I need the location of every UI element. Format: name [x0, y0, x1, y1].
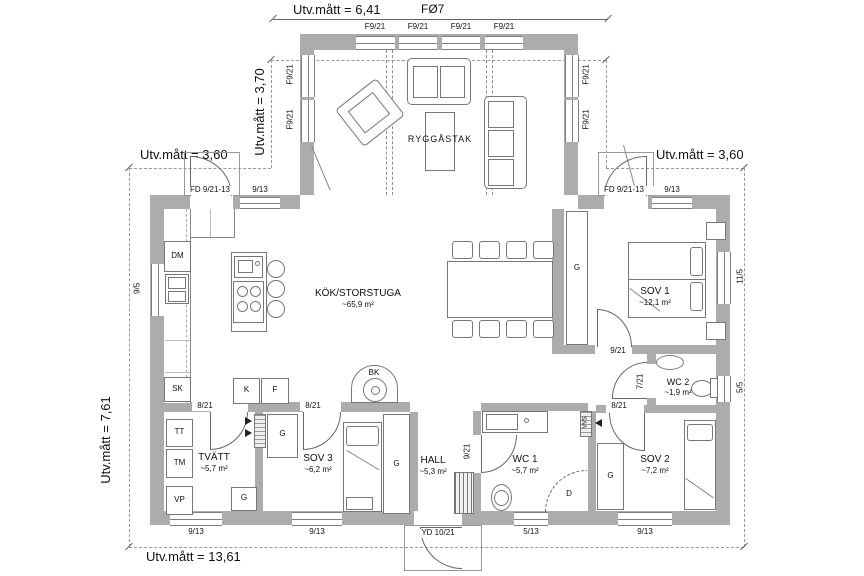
window-913	[292, 512, 342, 526]
door-arc	[303, 412, 341, 450]
room-area-sov2: ~7,2 m²	[620, 467, 690, 476]
window-513	[514, 512, 548, 526]
dining-chair	[506, 241, 527, 259]
wall-top	[300, 34, 578, 50]
window-label-f921: F9/21	[484, 23, 524, 32]
door-opening-fd	[604, 195, 648, 209]
bar-stool	[267, 260, 285, 278]
dining-chair	[533, 320, 554, 338]
dim-top-section: Utv.mått = 3,70	[253, 52, 269, 172]
door-label-921: 9/21	[605, 347, 631, 356]
window-label-913: 9/13	[297, 528, 337, 537]
sofa-cushion	[488, 101, 514, 128]
bar-stool	[267, 300, 285, 318]
dim-top: Utv.mått = 6,41	[293, 3, 381, 17]
toilet-seat	[494, 490, 509, 506]
wall-main-right	[716, 195, 730, 525]
toilet-tank	[710, 378, 718, 398]
dimension-line-top	[273, 19, 608, 20]
window-f921	[565, 100, 579, 142]
window-f921	[301, 100, 315, 142]
diagonal-mark	[311, 146, 331, 191]
dining-chair	[479, 241, 500, 259]
dim-side: Utv.mått = 7,61	[99, 380, 115, 500]
vanity-sink	[486, 414, 518, 430]
flue-inner	[371, 386, 380, 395]
window-label-55: 5/5	[737, 367, 746, 407]
door-label-921: 9/21	[464, 431, 473, 471]
window-label-913: 9/13	[652, 186, 692, 195]
window-label-95: 9/5	[134, 268, 143, 308]
pillow	[690, 282, 703, 311]
door-label-721: 7/21	[637, 361, 646, 401]
heat-pump-label: VP	[166, 496, 193, 505]
dim-roof-window: FØ7	[421, 3, 444, 16]
window-913	[652, 197, 692, 209]
dining-table	[447, 261, 553, 318]
floor-plan: Utv.mått = 6,41 FØ7 Utv.mått = 3,70 Utv.…	[0, 0, 864, 576]
window-label-115: 11/5	[737, 256, 746, 296]
dresser	[346, 497, 373, 510]
cabinet-label-sk: SK	[164, 385, 191, 394]
wall-wc1-top	[481, 403, 588, 411]
fireplace-label: BK	[362, 369, 386, 378]
counter-divider	[165, 340, 190, 341]
nightstand	[706, 322, 726, 340]
window-label-f921: F9/21	[441, 23, 481, 32]
window-55	[717, 376, 731, 402]
radiator	[454, 472, 474, 514]
burner	[237, 301, 248, 312]
window-label-913: 9/13	[176, 528, 216, 537]
window-115	[717, 252, 731, 304]
wall-sov2-top	[596, 405, 606, 413]
door-label-fd: FD 9/21-13	[186, 186, 234, 195]
room-label-hall: HALL	[408, 455, 458, 466]
burner	[237, 286, 248, 297]
counter-divider	[165, 372, 190, 373]
door-arc	[210, 412, 248, 450]
counter-overhang	[186, 209, 187, 403]
burner	[250, 286, 261, 297]
pillow	[346, 426, 379, 446]
room-label-tvatt: TVÄTT	[184, 452, 244, 463]
wash-basin	[656, 355, 684, 370]
wall-sov1-bottom	[552, 345, 595, 354]
dining-chair	[452, 241, 473, 259]
door-label-fd: FD 9/21-13	[600, 186, 648, 195]
dining-chair	[452, 320, 473, 338]
window-f921	[356, 36, 395, 50]
wardrobe-label: G	[566, 264, 588, 273]
window-95	[151, 264, 165, 316]
room-area-sov1: ~12,1 m²	[620, 299, 690, 308]
pillow	[687, 424, 713, 441]
window-f921	[485, 36, 523, 50]
sink-bowl	[168, 291, 186, 302]
eaves-line	[744, 168, 745, 547]
wardrobe-label: G	[267, 430, 298, 439]
room-label-sov2: SOV 2	[620, 454, 690, 465]
window-label-f921: F9/21	[287, 54, 296, 94]
window-913	[618, 512, 672, 526]
vvs-arrow	[595, 419, 602, 427]
room-area-sov3: ~6,2 m²	[286, 466, 350, 475]
wall-sov1-bottom	[632, 345, 716, 354]
dishwasher-label: DM	[164, 252, 191, 261]
room-area-hall: ~5,3 m²	[406, 468, 460, 477]
window-f921	[301, 55, 315, 97]
window-f921	[399, 36, 437, 50]
window-label-f921: F9/21	[583, 54, 592, 94]
armchair-seat	[348, 92, 390, 134]
window-label-513: 5/13	[511, 528, 551, 537]
wall-wc2-left	[647, 354, 656, 364]
wardrobe-label: G	[231, 494, 257, 503]
door-arc	[597, 309, 632, 347]
window-label-913: 9/13	[240, 186, 280, 195]
fridge-label: K	[233, 386, 260, 395]
room-area-wc1: ~5,7 m²	[493, 467, 557, 476]
counter-divider	[210, 209, 211, 237]
eaves-line	[129, 168, 130, 547]
window-f921	[442, 36, 480, 50]
eaves-line	[271, 60, 272, 168]
sofa-cushion	[413, 66, 438, 98]
sink-bowl	[168, 277, 186, 289]
bed-centerline	[628, 279, 706, 280]
dining-chair	[479, 320, 500, 338]
room-label-sov1: SOV 1	[620, 286, 690, 297]
faucet	[524, 418, 529, 423]
wall-sov2-top	[644, 405, 716, 413]
sofa-cushion	[488, 159, 514, 186]
faucet	[255, 261, 260, 266]
door-label-yd: YD 10/21	[415, 529, 461, 538]
door-label-821: 8/21	[300, 402, 326, 411]
wall-main-left	[150, 195, 164, 525]
window-f921	[565, 55, 579, 97]
room-label-livingroom: RYGGÅSTAK	[390, 135, 490, 145]
island-sink-bowl	[238, 260, 253, 273]
door-opening-fd	[190, 195, 233, 209]
door-leaf	[644, 413, 645, 451]
room-area-tvatt: ~5,7 m²	[182, 465, 246, 474]
wall-hall-wc1	[473, 473, 481, 511]
vent-shaft	[254, 414, 266, 448]
vvs-label: VVS	[583, 402, 590, 442]
window-label-f921: F9/21	[355, 23, 395, 32]
dining-chair	[533, 241, 554, 259]
room-area-wc2: ~1,9 m²	[656, 389, 700, 398]
dim-bottom: Utv.mått = 13,61	[146, 550, 241, 564]
freezer-label: F	[261, 386, 289, 395]
window-913	[240, 197, 280, 209]
sofa-cushion	[440, 66, 465, 98]
window-label-f921: F9/21	[398, 23, 438, 32]
nightstand	[706, 222, 726, 240]
window-label-f921: F9/21	[287, 99, 296, 139]
vent-arrow	[245, 429, 252, 437]
room-area-kitchen: ~65,9 m²	[300, 301, 416, 310]
door-label-821: 8/21	[606, 402, 632, 411]
wall-sov3-top	[341, 402, 410, 412]
room-label-wc1: WC 1	[495, 454, 555, 465]
burner	[250, 301, 261, 312]
pillow	[690, 247, 703, 276]
dining-chair	[506, 320, 527, 338]
window-label-f921: F9/21	[583, 99, 592, 139]
room-label-wc2: WC 2	[658, 378, 698, 388]
sofa-cushion	[488, 130, 514, 157]
door-label-821: 8/21	[192, 402, 218, 411]
dryer-label: TT	[166, 428, 193, 437]
vent-arrow	[245, 417, 252, 425]
dim-right-wing: Utv.mått = 3,60	[656, 148, 744, 162]
window-label-913: 9/13	[625, 528, 665, 537]
bar-stool	[267, 280, 285, 298]
room-label-kitchen: KÖK/STORSTUGA	[300, 288, 416, 299]
shower-label: D	[562, 490, 576, 499]
wall-hall-wc1	[473, 411, 481, 435]
wardrobe	[566, 211, 588, 345]
room-label-sov3: SOV 3	[288, 453, 348, 464]
